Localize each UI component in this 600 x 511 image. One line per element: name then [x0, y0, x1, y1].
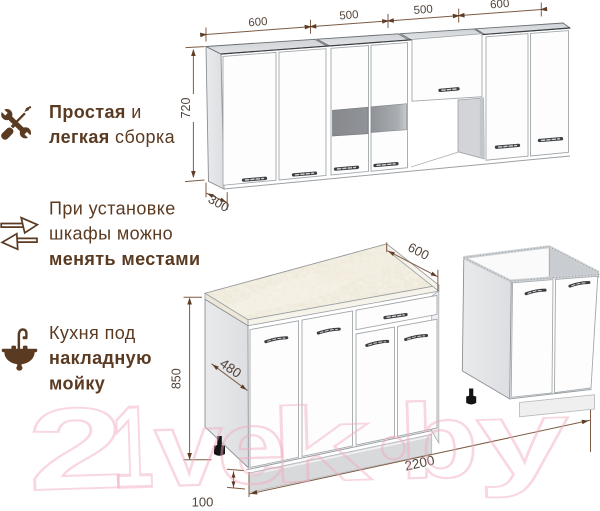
svg-text:v: v	[153, 389, 225, 509]
svg-text:720: 720	[179, 98, 193, 119]
svg-text:850: 850	[169, 368, 183, 389]
svg-text:b: b	[397, 381, 480, 502]
svg-text:600: 600	[490, 0, 510, 11]
svg-text:менять местами: менять местами	[49, 249, 201, 269]
svg-text:При установке: При установке	[49, 198, 176, 218]
svg-text:шкафы можно: шкафы можно	[49, 224, 173, 244]
svg-text:y: y	[474, 377, 571, 499]
svg-text:500: 500	[339, 9, 359, 22]
svg-text:Кухня под: Кухня под	[49, 323, 136, 343]
svg-text:k: k	[267, 383, 373, 505]
svg-text:накладную: накладную	[49, 348, 152, 368]
svg-text:легкая сборка: легкая сборка	[49, 127, 176, 147]
svg-text:1: 1	[110, 381, 155, 511]
svg-text:Простая и: Простая и	[49, 102, 142, 122]
svg-text:500: 500	[413, 4, 433, 17]
svg-text:600: 600	[248, 16, 268, 29]
